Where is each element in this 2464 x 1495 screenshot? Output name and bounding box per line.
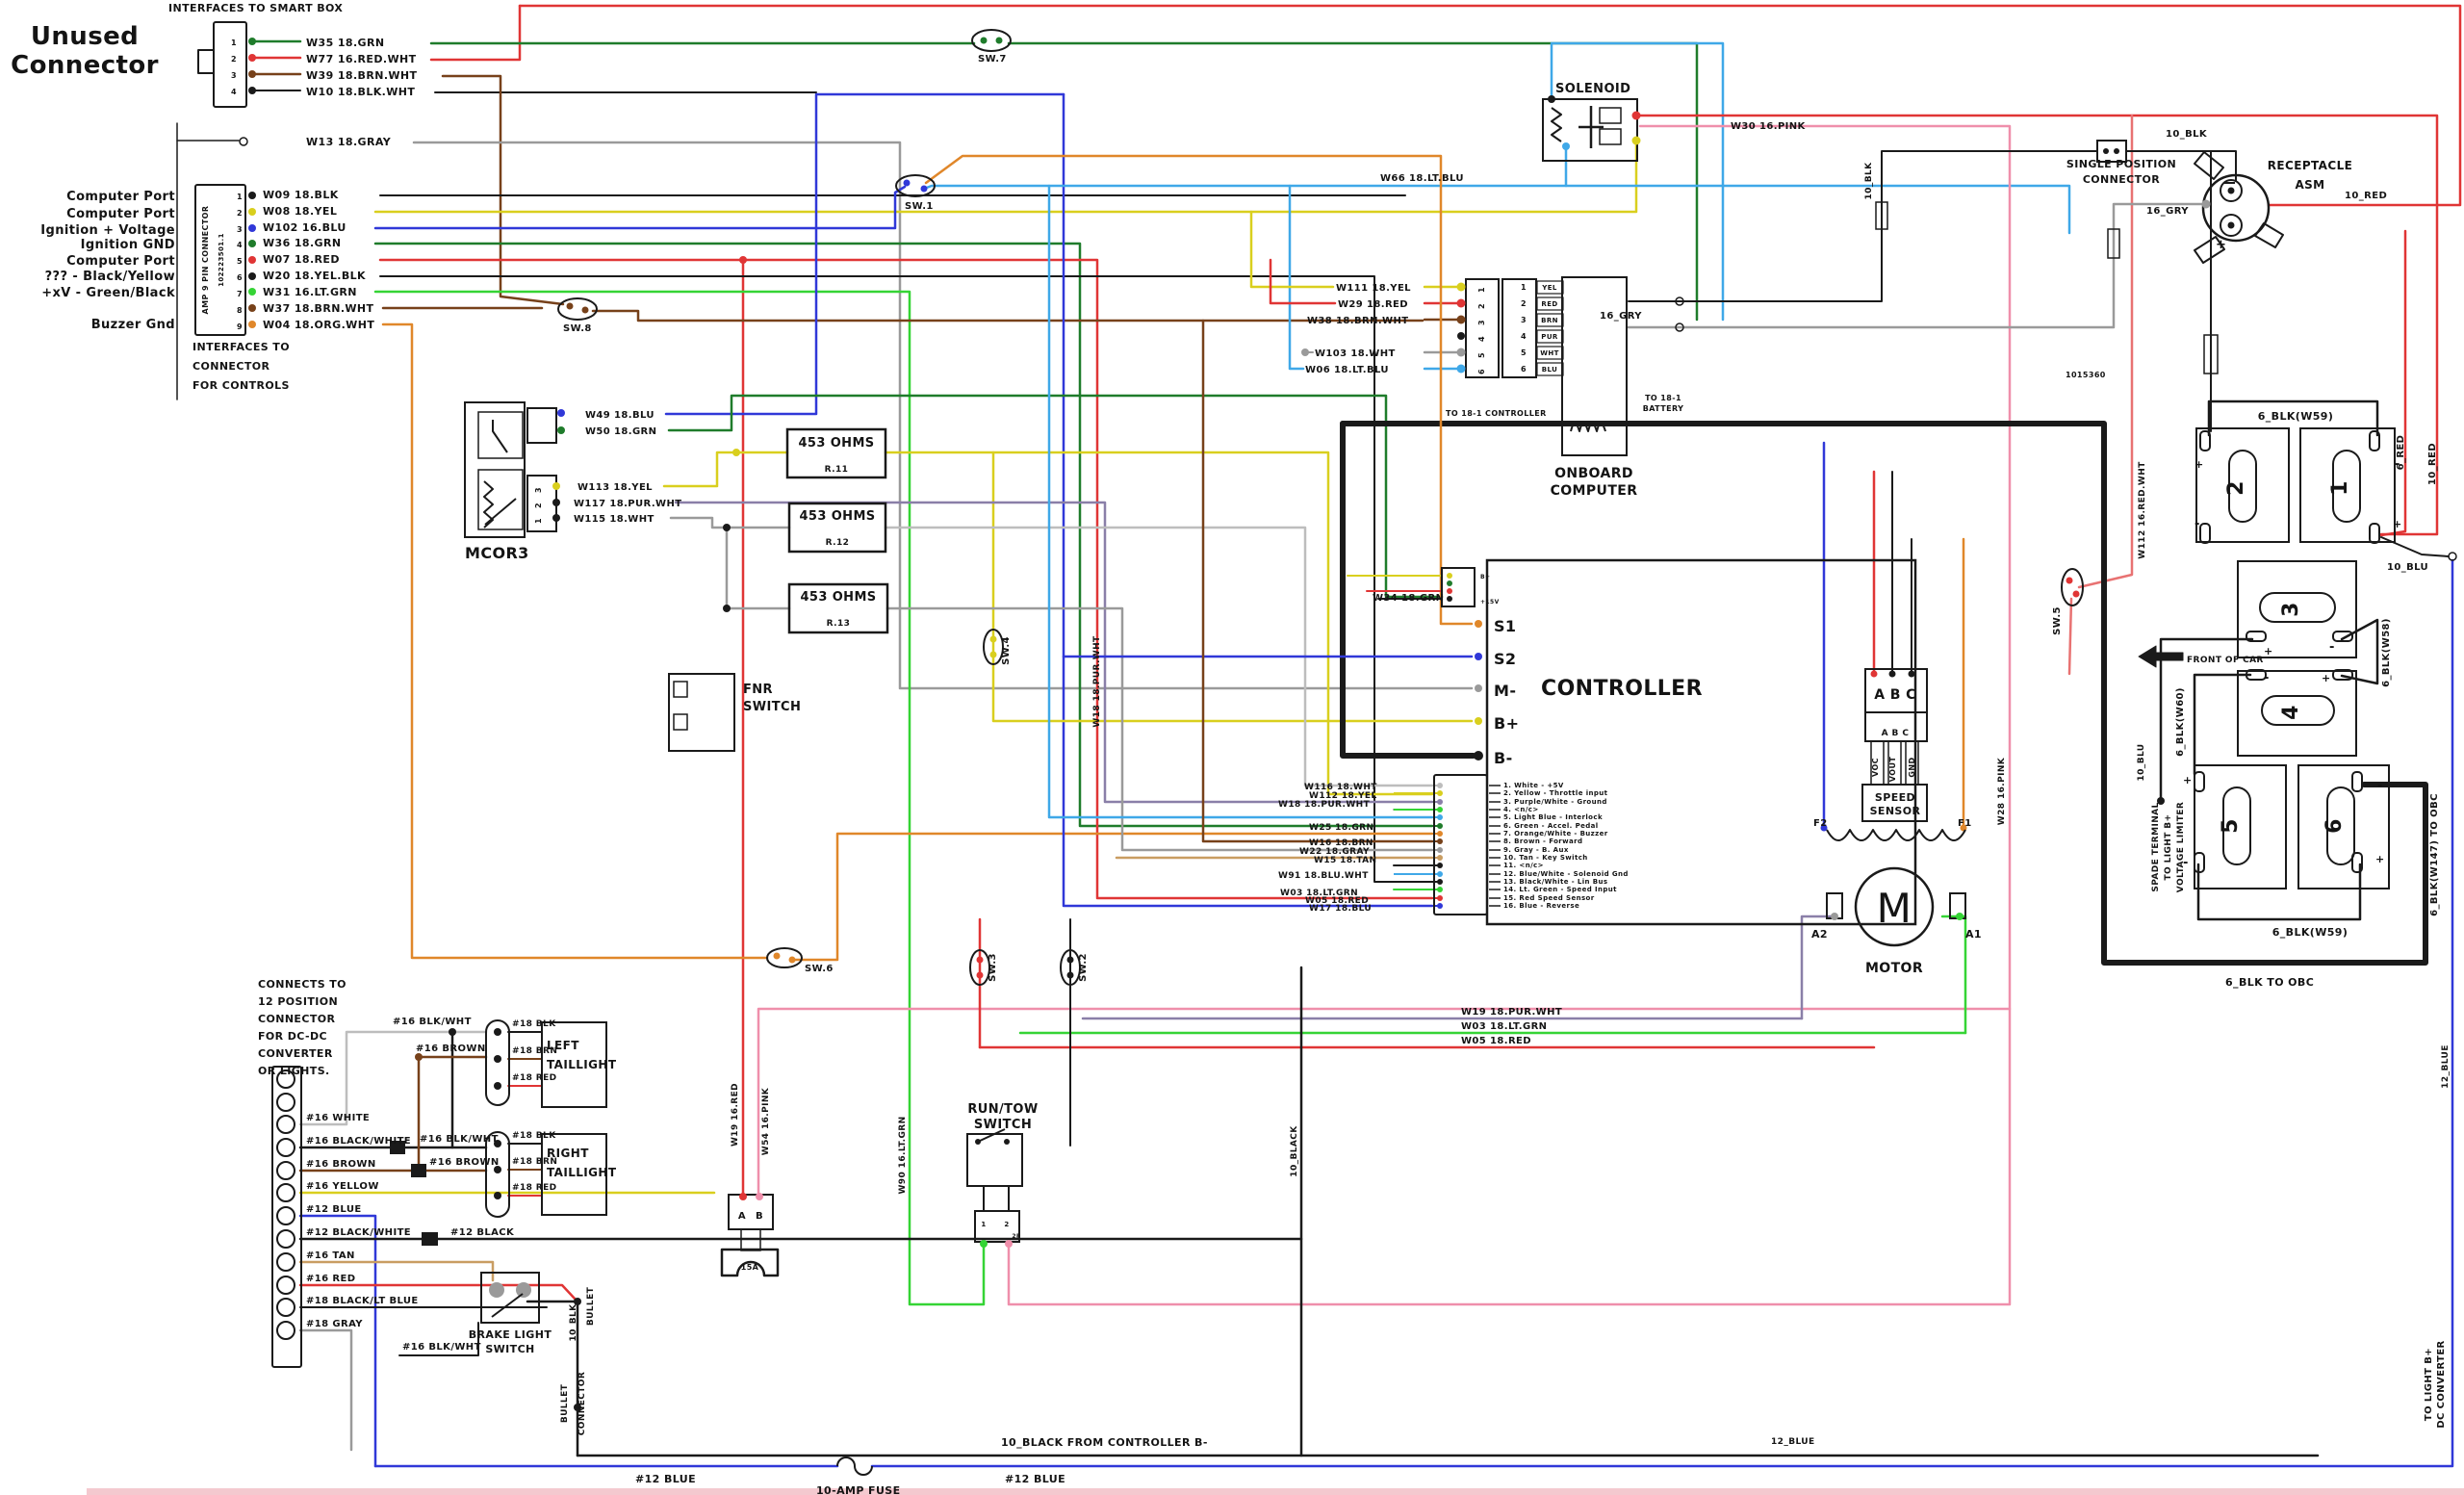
wire-blk-60 — [1343, 424, 1474, 756]
terminal-dot-red-1 — [248, 54, 256, 62]
labels-layer: INTERFACES TO SMART BOXUnusedConnectorW3… — [11, 2, 2451, 1495]
label-a2: A2 — [1811, 928, 1828, 941]
label-to-light-b+: TO LIGHT B+ — [2164, 814, 2173, 881]
terminal-dot-brn-45 — [1457, 316, 1466, 324]
terminal-dot-yel-34 — [732, 449, 740, 456]
label-to-18-1-controller: TO 18-1 CONTROLLER — [1446, 409, 1547, 418]
label-pur: PUR — [1541, 333, 1558, 341]
label-r-12: R.12 — [826, 538, 850, 548]
label-red: RED — [1541, 300, 1557, 308]
circle-11 — [277, 1139, 295, 1156]
controller-pin16-dot-4 — [1437, 807, 1443, 812]
label--16-white: #16 WHITE — [306, 1113, 370, 1123]
terminal-dot-grn-7 — [248, 240, 256, 247]
label-yel: YEL — [1541, 284, 1557, 292]
glyph-path-1 — [1827, 830, 1965, 840]
label-unused: Unused — [31, 22, 139, 51]
component-box-66 — [2200, 524, 2210, 543]
label-sw-4: SW.4 — [1001, 636, 1012, 665]
label-w113-18-yel: W113 18.YEL — [577, 482, 653, 493]
label-1: 1 — [2328, 480, 2352, 496]
label--: - — [2264, 671, 2270, 685]
wire-grn-16 — [375, 244, 1432, 826]
label-w111-18-yel: W111 18.YEL — [1336, 283, 1411, 294]
label--16-brown: #16 BROWN — [429, 1157, 500, 1168]
terminal-dot-gry-85 — [489, 1282, 504, 1298]
label-sw-8: SW.8 — [563, 323, 592, 334]
label-or-lights-: OR LIGHTS. — [258, 1065, 330, 1077]
label-+: + — [2216, 238, 2226, 252]
controller-pin16-dot-10 — [1437, 855, 1443, 861]
terminal-dot-blk-4 — [248, 192, 256, 199]
label-4: 4 — [2279, 705, 2303, 720]
label--: - — [2329, 640, 2335, 655]
label-10-blk: 10_BLK — [1864, 162, 1874, 200]
controller-pin16-dot-15 — [1437, 895, 1443, 901]
label-front-of-car: FRONT OF CAR — [2187, 656, 2264, 665]
label-controller: CONTROLLER — [1541, 677, 1703, 701]
component-box-77 — [87, 1488, 2464, 1495]
label-8: 8 — [237, 306, 243, 315]
component-box-16 — [1466, 279, 1499, 377]
label-vout: VOUT — [1888, 757, 1897, 783]
wire-blk-111 — [2198, 864, 2360, 919]
label-w91-18-blu-wht: W91 18.BLU.WHT — [1278, 871, 1369, 881]
label-fnr: FNR — [743, 683, 773, 697]
label-computer-port: Computer Port — [66, 190, 175, 204]
terminal-dot-yel-43 — [1457, 283, 1466, 292]
terminal-dot-gry-86 — [516, 1282, 531, 1298]
label-453-ohms: 453 OHMS — [799, 509, 875, 524]
terminal-dot-gry-38 — [1301, 348, 1309, 356]
wire-gry-11 — [414, 142, 1472, 688]
label-6-blk-to-obc: 6_BLK TO OBC — [2225, 976, 2314, 989]
label-1: 1 — [1477, 287, 1486, 293]
label-converter: CONVERTER — [258, 1047, 333, 1060]
label-102223501-1: 102223501.1 — [218, 233, 225, 287]
label-sw-5: SW.5 — [2052, 606, 2063, 635]
label-3: 3 — [1477, 320, 1486, 325]
terminal-dot-blu-29 — [557, 409, 565, 417]
label--black-yellow: ??? - Black/Yellow — [45, 270, 175, 284]
label-w19-18-pur-wht: W19 18.PUR.WHT — [1461, 1007, 1562, 1018]
wire-blu-15 — [375, 187, 905, 228]
label-2: 2 — [534, 503, 543, 508]
terminal-dot-blk-81 — [2228, 188, 2235, 194]
label-connector: CONNECTOR — [192, 360, 269, 373]
label-connector: Connector — [11, 51, 159, 80]
label-1-white-+5v: 1. White - +5V — [1503, 782, 1564, 789]
label-w31-16-lt-grn: W31 16.LT.GRN — [263, 286, 357, 298]
label-voltage-limiter: VOLTAGE LIMITER — [2176, 802, 2186, 892]
component-box-75 — [2352, 772, 2362, 791]
glyph-path-11 — [2194, 152, 2223, 179]
label-4-n-c-: 4. <n/c> — [1503, 806, 1539, 813]
label-16-blue-reverse: 16. Blue - Reverse — [1503, 902, 1579, 910]
label-a: A — [738, 1211, 746, 1222]
terminal-dot-blk-74 — [494, 1192, 501, 1199]
label-f1: F1 — [1958, 818, 1972, 829]
terminal-dot-blk-32 — [552, 499, 560, 506]
controller-pin16-dot-14 — [1437, 887, 1443, 892]
label-3: 3 — [231, 71, 237, 80]
label-11-n-c-: 11. <n/c> — [1503, 862, 1544, 869]
label-sw-7: SW.7 — [978, 54, 1007, 64]
label-for-dc-dc: FOR DC-DC — [258, 1030, 327, 1043]
label-run-tow: RUN/TOW — [967, 1102, 1038, 1117]
label-right: RIGHT — [547, 1147, 589, 1160]
label-w30-16-pink: W30 16.PINK — [1731, 121, 1807, 132]
controller-pin16-dot-1 — [1437, 783, 1443, 788]
label-w28-16-pink: W28 16.PINK — [1997, 757, 2007, 825]
label-computer: COMPUTER — [1551, 483, 1638, 499]
label-blu: BLU — [1542, 366, 1557, 374]
label-1015360: 1015360 — [2066, 371, 2106, 379]
terminal-dot-brn-14 — [582, 307, 589, 314]
terminal-dot-grn-50 — [1447, 580, 1452, 586]
label-taillight: TAILLIGHT — [547, 1058, 617, 1071]
wire-red-44 — [1270, 260, 1335, 303]
label--18-blk: #18 BLK — [512, 1019, 556, 1029]
component-box-51 — [411, 1164, 426, 1177]
label-w66-18-lt-blu: W66 18.LT.BLU — [1380, 173, 1464, 184]
label-2: 2 — [1004, 1221, 1009, 1228]
label-connector: CONNECTOR — [2083, 173, 2160, 186]
terminal-dot-blk-46 — [1457, 332, 1465, 340]
label-w37-18-brn-wht: W37 18.BRN.WHT — [263, 302, 374, 315]
label-+: + — [2322, 672, 2331, 684]
label-7: 7 — [237, 290, 243, 298]
label-w54-16-pink: W54 16.PINK — [761, 1087, 771, 1155]
label-a-b-c: A B C — [1874, 687, 1916, 703]
label-6-blk-w60-: 6_BLK(W60) — [2175, 687, 2186, 757]
label--16-yellow: #16 YELLOW — [306, 1181, 379, 1192]
component-box-17 — [1502, 279, 1536, 377]
terminal-dot-blk-69 — [494, 1028, 501, 1036]
terminal-dot-red-66 — [1871, 671, 1878, 678]
label-connector: CONNECTOR — [258, 1013, 335, 1025]
terminal-dot-blk-3 — [248, 87, 256, 94]
wire-org-24 — [383, 324, 767, 958]
label-14-lt-green-speed-input: 14. Lt. Green - Speed Input — [1503, 886, 1617, 893]
label-1: 1 — [231, 39, 237, 47]
label-3-purple-white-ground: 3. Purple/White - Ground — [1503, 798, 1607, 806]
terminal-dot-blk-39 — [1548, 95, 1555, 103]
label-w05-18-red: W05 18.RED — [1461, 1036, 1531, 1046]
label-b-: B- — [1494, 749, 1513, 767]
label-10-blk: 10_BLK — [569, 1303, 578, 1342]
terminal-dot-blu-18 — [921, 186, 928, 193]
circle-17 — [277, 1276, 295, 1294]
label-spade-terminal: SPADE TERMINAL — [2151, 802, 2161, 891]
label-sensor: SENSOR — [1870, 805, 1921, 817]
terminal-dot-brn-2 — [248, 70, 256, 78]
label-w50-18-grn: W50 18.GRN — [585, 426, 656, 437]
label-+: + — [2183, 774, 2193, 786]
terminal-dot-cyn-48 — [1457, 365, 1466, 374]
terminal-dot-brn-76 — [415, 1053, 423, 1061]
circle-16 — [277, 1253, 295, 1271]
circle-14 — [277, 1207, 295, 1224]
terminal-dot-red-23 — [977, 957, 984, 964]
wire-cyn-38 — [1566, 186, 2069, 233]
glyph-path-4 — [1552, 108, 1561, 142]
label-3: 3 — [237, 225, 243, 234]
label-f2: F2 — [1813, 818, 1828, 829]
wire-grn-28 — [669, 396, 1442, 597]
label-to-18-1: TO 18-1 — [1645, 394, 1681, 402]
label-w35-18-grn: W35 18.GRN — [306, 37, 384, 49]
label-m: M — [1877, 885, 1912, 932]
label-w103-18-wht: W103 18.WHT — [1315, 348, 1396, 359]
label-2p: 2P — [1012, 1233, 1021, 1240]
wire-brn-22 — [593, 311, 1423, 321]
label-4: 4 — [231, 88, 237, 96]
label-w117-18-pur-wht: W117 18.PUR.WHT — [574, 499, 681, 509]
label-4: 4 — [237, 241, 243, 249]
label-+: + — [2375, 853, 2385, 865]
wire-yel-31 — [993, 452, 1472, 721]
label-9-gray-b-aux: 9. Gray - B. Aux — [1503, 846, 1569, 854]
terminal-dot-blu-54 — [1475, 653, 1482, 660]
label--16-blk-wht: #16 BLK/WHT — [420, 1134, 499, 1145]
terminal-dot-blk-70 — [494, 1055, 501, 1063]
terminal-dot-org-20 — [789, 957, 796, 964]
terminal-dot-ltg-10 — [248, 288, 256, 296]
label-12-blue-white-solenoid-gnd: 12. Blue/White - Solenoid Gnd — [1503, 870, 1629, 878]
label-+: + — [2393, 518, 2402, 530]
component-box-10 — [669, 674, 734, 751]
wiring-diagram-page: Golf cart 48V wiring diagram: smart box … — [0, 0, 2464, 1495]
terminal-dot-red-44 — [1457, 299, 1466, 308]
label-mcor3: MCOR3 — [465, 544, 529, 562]
label-interfaces-to: INTERFACES TO — [192, 341, 290, 353]
terminal-dot-gry-47 — [1457, 348, 1466, 357]
glyph-path-15 — [198, 50, 214, 73]
wires-layer — [177, 6, 2460, 1466]
wire-gry-55 — [1629, 204, 2208, 327]
label-12-blue: 12_BLUE — [2441, 1044, 2451, 1089]
label-computer-port: Computer Port — [66, 254, 175, 269]
label-single-position: SINGLE POSITION — [2066, 158, 2176, 170]
circle-15 — [277, 1230, 295, 1248]
label-6-green-accel-pedal: 6. Green - Accel. Pedal — [1503, 822, 1599, 830]
label-w77-16-red-wht: W77 16.RED.WHT — [306, 53, 417, 65]
label-connects-to: CONNECTS TO — [258, 978, 346, 991]
label-switch: SWITCH — [974, 1118, 1032, 1132]
label--18-gray: #18 GRAY — [306, 1319, 363, 1329]
label-for-controls: FOR CONTROLS — [192, 379, 290, 392]
wire-org-61 — [926, 156, 1472, 624]
terminal-dot-red-24 — [977, 972, 984, 979]
glyph-path-6 — [493, 420, 507, 452]
label-s1: S1 — [1494, 617, 1516, 635]
terminal-dot-gry-83 — [2202, 200, 2211, 209]
component-box-12 — [674, 714, 687, 730]
terminal-dot-ltg-65 — [1956, 913, 1963, 920]
label-w07-18-red: W07 18.RED — [263, 253, 340, 266]
label-10-amp-fuse: 10-AMP FUSE — [816, 1484, 901, 1495]
label-asm: ASM — [2295, 178, 2324, 192]
label-s2: S2 — [1494, 650, 1516, 668]
label--: - — [2194, 517, 2200, 531]
circle-18 — [277, 1299, 295, 1316]
label-computer-port: Computer Port — [66, 207, 175, 221]
label-6: 6 — [2323, 818, 2347, 834]
label-bullet: BULLET — [560, 1383, 570, 1423]
label-2-yellow-throttle-input: 2. Yellow - Throttle input — [1503, 789, 1608, 797]
label-+: + — [2264, 645, 2273, 657]
label-solenoid: SOLENOID — [1555, 82, 1630, 96]
terminal-dot-blk-67 — [1889, 671, 1896, 678]
label-interfaces-to-smart-box: INTERFACES TO SMART BOX — [168, 2, 343, 14]
label-10-black: 10_BLACK — [1290, 1125, 1299, 1177]
label-15-red-speed-sensor: 15. Red Speed Sensor — [1503, 894, 1595, 902]
terminal-dot-blk-9 — [248, 272, 256, 280]
label--18-blk: #18 BLK — [512, 1131, 556, 1141]
wire-yel-29 — [664, 452, 787, 486]
label-dc-converter: DC CONVERTER — [2436, 1340, 2447, 1428]
component-box-14 — [1600, 108, 1621, 123]
circle-13 — [277, 1184, 295, 1201]
terminal-dot-blk-80 — [2114, 148, 2119, 154]
label-6-blk-w59-: 6_BLK(W59) — [2272, 926, 2348, 939]
label-w10-18-blk-wht: W10 18.BLK.WHT — [306, 86, 415, 98]
component-box-3 — [527, 408, 556, 443]
label--: - — [2377, 779, 2383, 793]
controller-pin16-dot-3 — [1437, 799, 1443, 805]
terminal-dot-yel-56 — [1475, 717, 1482, 725]
wire-ltg-20 — [375, 292, 984, 1304]
label-9: 9 — [237, 322, 243, 331]
label-w19-16-red: W19 16.RED — [731, 1083, 740, 1147]
component-box-26 — [1442, 568, 1475, 606]
label-1: 1 — [237, 193, 243, 201]
label-+: + — [2194, 458, 2204, 471]
label-10-blk: 10_BLK — [2166, 129, 2208, 140]
circle-12 — [277, 1162, 295, 1179]
wire-red-50 — [2381, 231, 2405, 535]
circle-19 — [277, 1322, 295, 1339]
terminal-dot-red-58 — [739, 1193, 747, 1200]
component-box-5 — [478, 412, 523, 458]
component-box-11 — [674, 682, 687, 697]
label-w34-18-grn: W34 18.GRN — [1373, 593, 1444, 604]
terminal-dot-pnk-61 — [1005, 1240, 1013, 1248]
label-w112-16-red-wht: W112 16.RED.WHT — [2138, 461, 2147, 559]
wire-gry-36 — [887, 608, 1432, 850]
wire-blk-113 — [2194, 675, 2250, 774]
circle-7 — [240, 138, 247, 145]
label-2: 2 — [237, 209, 243, 218]
terminal-dot-cyn-42 — [1562, 142, 1570, 150]
label--18-red: #18 RED — [512, 1073, 557, 1083]
label-6: 6 — [1521, 365, 1527, 374]
component-box-52 — [422, 1232, 438, 1246]
label-r-11: R.11 — [825, 465, 849, 475]
controller-pin16-dot-13 — [1437, 879, 1443, 885]
terminal-dot-blk-71 — [494, 1082, 501, 1090]
terminal-dot-yel-22 — [990, 652, 997, 658]
wire-pnk-52 — [758, 1009, 2010, 1197]
terminal-dot-red-40 — [1632, 112, 1641, 120]
label-sw-2: SW.2 — [1078, 953, 1089, 982]
label-w15-18-tan: W15 18.TAN — [1314, 856, 1376, 865]
label-gnd: GND — [1908, 757, 1916, 777]
label-battery: BATTERY — [1643, 404, 1684, 413]
label-sw-6: SW.6 — [805, 964, 834, 974]
component-box-42 — [729, 1195, 773, 1229]
terminal-dot-red-28 — [2073, 591, 2080, 598]
controller-pin16-dot-11 — [1437, 863, 1443, 868]
label--: - — [2183, 856, 2189, 870]
terminal-dot-blu-6 — [248, 224, 256, 232]
label-5-light-blue-interlock: 5. Light Blue - Interlock — [1503, 813, 1603, 821]
controller-pin16-dot-7 — [1437, 831, 1443, 837]
label-a-b-c: A B C — [1882, 729, 1910, 738]
label-1: 1 — [534, 518, 543, 524]
terminal-dot-blk-26 — [1067, 972, 1074, 979]
terminal-dot-brn-11 — [248, 304, 256, 312]
label-w18-18-pur-wht: W18 18.PUR.WHT — [1092, 635, 1102, 728]
circle-10 — [277, 1116, 295, 1133]
terminal-dot-yel-41 — [1632, 137, 1641, 145]
label-w115-18-wht: W115 18.WHT — [574, 514, 654, 525]
label-4: 4 — [1477, 336, 1486, 342]
controller-pin16-dot-8 — [1437, 838, 1443, 844]
terminal-dot-blk-36 — [723, 605, 731, 612]
label-b: B — [756, 1211, 763, 1222]
terminal-dot-blk-35 — [723, 524, 731, 531]
label-3: 3 — [2279, 602, 2303, 617]
label-buzzer-gnd: Buzzer Gnd — [91, 318, 175, 332]
label-receptacle: RECEPTACLE — [2268, 159, 2352, 172]
label-15a: 15A — [741, 1263, 759, 1272]
terminal-dot-yel-21 — [990, 636, 997, 643]
label-w39-18-brn-wht: W39 18.BRN.WHT — [306, 69, 418, 82]
label-6-blk-w59-: 6_BLK(W59) — [2258, 410, 2334, 423]
label-2: 2 — [1521, 299, 1527, 308]
controller-pin16-dot-9 — [1437, 847, 1443, 853]
label-1: 1 — [1521, 283, 1527, 292]
label-motor: MOTOR — [1865, 961, 1923, 976]
label-453-ohms: 453 OHMS — [798, 436, 874, 451]
label-10-tan-key-switch: 10. Tan - Key Switch — [1503, 854, 1588, 862]
label-w102-16-blu: W102 16.BLU — [263, 221, 346, 234]
label-w04-18-org-wht: W04 18.ORG.WHT — [263, 319, 374, 331]
wire-red-0 — [520, 6, 2460, 205]
wire-brn-69 — [1203, 321, 1432, 841]
label-to-light-b+: TO LIGHT B+ — [2424, 1348, 2434, 1421]
wire-cyn-37 — [924, 148, 1566, 189]
terminal-dot-grn-16 — [996, 38, 1003, 44]
label-7-orange-white-buzzer: 7. Orange/White - Buzzer — [1503, 830, 1608, 838]
label--12-black-white: #12 BLACK/WHITE — [306, 1227, 411, 1238]
component-box-15 — [1600, 129, 1621, 144]
label-brn: BRN — [1541, 317, 1558, 324]
label--18-black-lt-blue: #18 BLACK/LT BLUE — [306, 1296, 419, 1306]
terminal-dot-blu-17 — [904, 180, 911, 187]
terminal-dot-pnk-59 — [756, 1193, 763, 1200]
label--: - — [2395, 457, 2400, 472]
controller-pin16-dot-5 — [1437, 814, 1443, 820]
controller-pin16-dot-12 — [1437, 871, 1443, 877]
component-box-73 — [2194, 772, 2204, 791]
terminal-dot-blk-52 — [1447, 596, 1452, 602]
terminal-dot-gry-55 — [1475, 684, 1482, 692]
label-brake-light: BRAKE LIGHT — [469, 1328, 552, 1341]
wire-red2-54 — [2069, 599, 2071, 674]
